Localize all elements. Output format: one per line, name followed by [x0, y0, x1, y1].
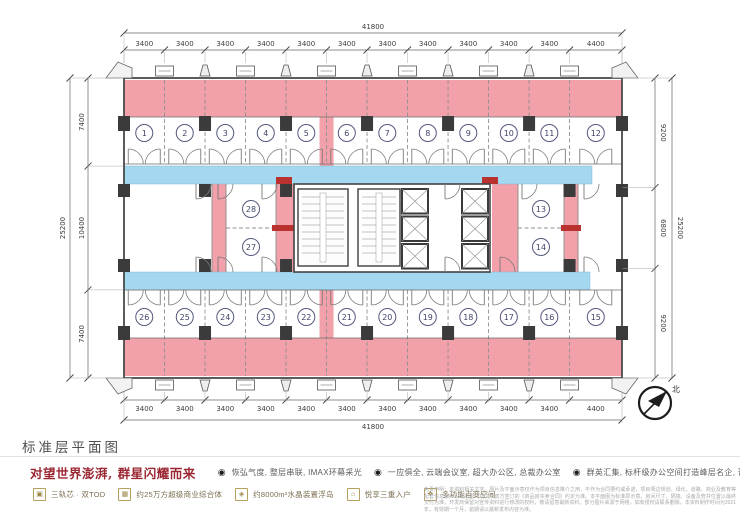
svg-text:41800: 41800: [362, 423, 384, 431]
svg-text:3400: 3400: [459, 40, 477, 48]
svg-text:3400: 3400: [135, 405, 153, 413]
svg-text:12: 12: [591, 129, 601, 138]
svg-text:9200: 9200: [659, 314, 667, 332]
feature-bullet-icon: ◉: [573, 468, 581, 477]
svg-text:3400: 3400: [297, 405, 315, 413]
svg-text:11: 11: [544, 129, 554, 138]
svg-text:3400: 3400: [216, 405, 234, 413]
svg-text:4400: 4400: [587, 405, 605, 413]
svg-text:3400: 3400: [378, 40, 396, 48]
svg-text:6: 6: [344, 129, 349, 138]
svg-text:5: 5: [304, 129, 309, 138]
amenity-label: 约8000m²水晶装置浮岛: [253, 489, 334, 500]
svg-text:7: 7: [385, 129, 390, 138]
svg-text:10400: 10400: [78, 217, 86, 239]
feature-text-0: 恢弘气度, 整层串联, IMAX环幕采光: [232, 467, 362, 478]
disclaimer-text: 免责声明：本资料相关文字、图片及平面示意仅作为项目信息推介之用，不作为合同要约或…: [424, 487, 736, 513]
island-icon: ◈: [235, 488, 248, 501]
svg-text:1: 1: [142, 129, 147, 138]
svg-text:4400: 4400: [587, 40, 605, 48]
svg-text:4: 4: [263, 129, 268, 138]
svg-text:17: 17: [504, 313, 514, 322]
plan-title: 标准层平面图: [22, 436, 121, 456]
svg-text:3400: 3400: [338, 40, 356, 48]
train-icon: ▣: [33, 488, 46, 501]
svg-text:3400: 3400: [338, 405, 356, 413]
svg-text:3400: 3400: [378, 405, 396, 413]
svg-text:8: 8: [425, 129, 430, 138]
feature-bullet-icon: ◉: [374, 468, 382, 477]
svg-text:3400: 3400: [257, 40, 275, 48]
svg-text:3400: 3400: [176, 40, 194, 48]
svg-text:20: 20: [382, 313, 392, 322]
svg-text:41800: 41800: [362, 23, 384, 31]
svg-text:7400: 7400: [78, 325, 86, 343]
svg-text:23: 23: [261, 313, 271, 322]
amenity-label: 约25万方超级商业综合体: [136, 489, 222, 500]
footer-divider: [0, 456, 740, 457]
svg-text:3400: 3400: [419, 405, 437, 413]
svg-text:25200: 25200: [676, 217, 684, 239]
svg-text:3400: 3400: [297, 40, 315, 48]
svg-text:21: 21: [342, 313, 352, 322]
svg-text:3400: 3400: [135, 40, 153, 48]
svg-text:3400: 3400: [540, 405, 558, 413]
feature-text-2: 群英汇集, 标杆级办公空间打造峰层名企, 菁英慕名而来: [587, 467, 740, 478]
svg-text:19: 19: [423, 313, 433, 322]
svg-text:27: 27: [246, 243, 256, 252]
svg-text:2: 2: [182, 129, 187, 138]
svg-text:14: 14: [536, 243, 546, 252]
amenity-item: ▦约25万方超级商业综合体: [118, 488, 222, 501]
core-stairs-elevators: [294, 184, 490, 272]
amenity-item: ◈约8000m²水晶装置浮岛: [235, 488, 334, 501]
svg-text:18: 18: [463, 313, 473, 322]
amenity-item: ⌂悦享三重入户: [347, 488, 411, 501]
tagline-row: 对望世界澎湃, 群星闪耀而来 ◉恢弘气度, 整层串联, IMAX环幕采光◉一应俱…: [30, 463, 735, 482]
svg-text:7400: 7400: [78, 113, 86, 131]
feature-text-1: 一应俱全, 云端会议室, 超大办公区, 总裁办公室: [388, 467, 561, 478]
floor-plan-drawing: 1234567891011122625242322212019181716152…: [0, 0, 740, 455]
feature-bullet-icon: ◉: [218, 468, 226, 477]
svg-text:25200: 25200: [59, 217, 67, 239]
svg-text:9200: 9200: [659, 124, 667, 142]
svg-text:3400: 3400: [176, 405, 194, 413]
floor-plan-page: 1234567891011122625242322212019181716152…: [0, 0, 740, 515]
svg-text:28: 28: [246, 205, 256, 214]
feature-list: ◉恢弘气度, 整层串联, IMAX环幕采光◉一应俱全, 云端会议室, 超大办公区…: [206, 467, 740, 478]
svg-text:3400: 3400: [419, 40, 437, 48]
svg-text:10: 10: [504, 129, 514, 138]
entry-icon: ⌂: [347, 488, 360, 501]
svg-text:13: 13: [536, 205, 546, 214]
tagline-text: 对望世界澎湃, 群星闪耀而来: [30, 463, 196, 482]
amenity-label: 三轨芯 · 双TOD: [51, 489, 105, 500]
svg-text:3400: 3400: [540, 40, 558, 48]
svg-text:北: 北: [672, 385, 680, 394]
svg-text:3400: 3400: [500, 405, 518, 413]
north-compass-icon: 北: [639, 385, 680, 419]
svg-text:3400: 3400: [257, 405, 275, 413]
mall-icon: ▦: [118, 488, 131, 501]
svg-text:25: 25: [180, 313, 190, 322]
svg-text:3: 3: [223, 129, 228, 138]
svg-text:26: 26: [139, 313, 149, 322]
svg-text:3400: 3400: [216, 40, 234, 48]
svg-text:15: 15: [591, 313, 601, 322]
svg-text:9: 9: [466, 129, 471, 138]
svg-text:22: 22: [301, 313, 311, 322]
svg-text:3400: 3400: [500, 40, 518, 48]
amenity-label: 悦享三重入户: [365, 489, 411, 500]
plan-root: 1234567891011122625242322212019181716152…: [59, 23, 684, 431]
svg-text:3400: 3400: [459, 405, 477, 413]
amenity-item: ▣三轨芯 · 双TOD: [33, 488, 105, 501]
svg-text:24: 24: [220, 313, 230, 322]
svg-text:16: 16: [544, 313, 554, 322]
svg-text:6800: 6800: [659, 219, 667, 237]
